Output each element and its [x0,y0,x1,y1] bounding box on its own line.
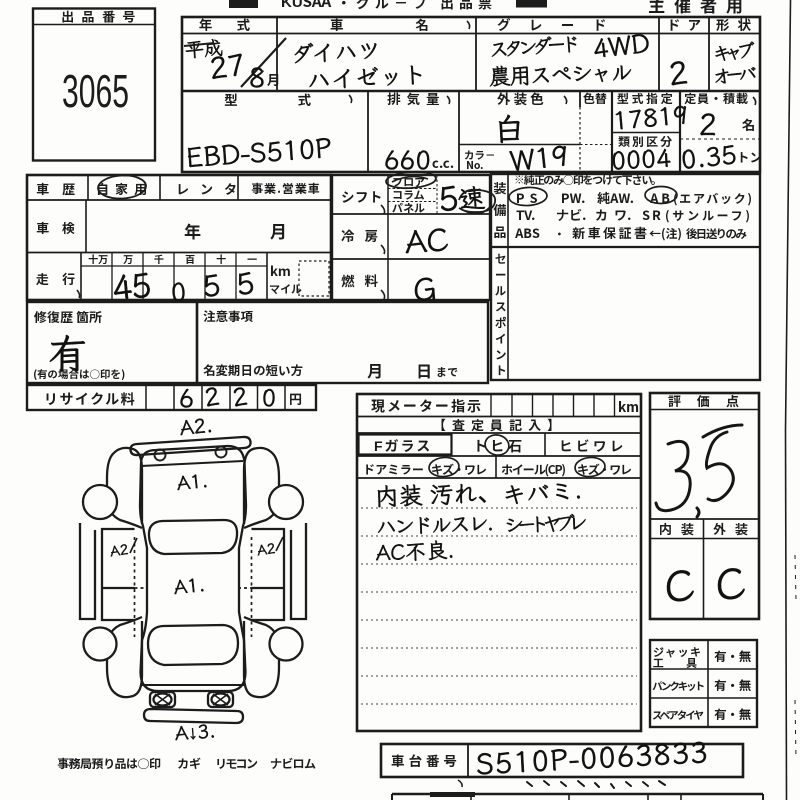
svg-text:事業.営業車: 事業.営業車 [251,180,321,197]
svg-text:パンクキット: パンクキット [652,679,705,694]
svg-text:農用スペシャル: 農用スペシャル [488,54,633,91]
svg-text:内装: 内装 [659,519,703,538]
svg-text:(有の場合は○印を): (有の場合は○印を) [33,367,125,382]
svg-text:17819: 17819 [611,95,689,137]
svg-text:カ: カ [595,205,608,224]
svg-text:A2: A2 [255,538,277,560]
svg-text:スペアタイヤ: スペアタイヤ [652,708,704,723]
svg-text:装: 装 [494,178,507,197]
svg-text:3065: 3065 [62,65,129,117]
svg-text:セ: セ [495,251,507,267]
svg-text:A2.: A2. [177,409,214,441]
svg-text:評価点: 評価点 [668,391,755,410]
svg-text:有・無: 有・無 [714,646,752,665]
svg-text:色替: 色替 [582,90,608,107]
svg-text:名: 名 [742,114,756,134]
svg-text:キバミ.: キバミ. [500,470,583,511]
svg-text:月: 月 [270,218,287,243]
svg-text:石: 石 [508,436,522,456]
svg-text:名変期日の短い方: 名変期日の短い方 [203,360,303,379]
svg-text:レンタ: レンタ [176,179,248,198]
svg-text:有・無: 有・無 [714,704,752,723]
svg-text:オ－バ: オ－バ [711,58,759,90]
svg-text:c.c.: c.c. [432,153,454,172]
svg-text:車名: 車名 [330,14,501,34]
svg-text:円: 円 [289,389,302,408]
svg-text:ト: ト [495,363,507,379]
svg-text:百: 百 [185,251,195,266]
svg-text:ー: ー [495,267,507,283]
svg-text:ル: ル [495,283,507,299]
svg-text:カギ: カギ [177,755,201,772]
svg-text:KUSAA: KUSAA [281,0,332,12]
svg-text:No.: No. [466,158,484,173]
svg-text:月: 月 [266,69,281,89]
svg-text:ドア: ドア [667,14,708,34]
svg-text:0.35: 0.35 [679,134,738,177]
svg-text:日: 日 [416,358,432,382]
svg-text:注意事項: 注意事項 [203,306,254,325]
svg-text:ナビ.: ナビ. [556,205,586,224]
svg-text:6: 6 [179,379,194,415]
svg-text:排気量: 排気量 [387,88,446,108]
svg-text:【査定員記入】: 【査定員記入】 [433,415,566,434]
svg-text:冷房: 冷房 [341,225,388,245]
svg-text:年: 年 [184,218,201,243]
svg-text:外装: 外装 [713,519,757,538]
svg-text:G: G [411,263,437,310]
svg-text:工具: 工具 [653,655,719,671]
svg-text:車検: 車検 [36,218,88,237]
svg-text:※純正のみ○印をつけて下さい。: ※純正のみ○印をつけて下さい。 [514,172,662,188]
svg-text:km: km [618,396,639,416]
svg-text:トン: トン [737,147,762,166]
svg-text:リサイクル料: リサイクル料 [44,389,136,409]
svg-text:AC: AC [402,214,449,262]
svg-text:後日送りのみ: 後日送りのみ [686,226,748,242]
svg-text:A1.: A1. [174,466,209,496]
svg-text:イ: イ [495,331,507,347]
svg-text:AC不良.: AC不良. [374,534,455,567]
svg-text:5: 5 [200,260,222,305]
svg-text:(エアバック): (エアバック) [673,190,752,207]
svg-text:シートヤブレ: シートヤブレ [503,506,588,538]
svg-text:ス: ス [495,299,507,315]
svg-text:出品番号: 出品番号 [61,7,143,26]
svg-text:・: ・ [554,226,565,242]
svg-text:型式: 型式 [224,89,371,109]
svg-text:月: 月 [367,358,383,382]
svg-text:(サンルーフ): (サンルーフ) [665,207,750,224]
svg-text:Fガラス: Fガラス [374,436,432,456]
svg-text:・グル－プ 出品票: ・グル－プ 出品票 [337,0,497,13]
svg-text:有・無: 有・無 [714,675,752,694]
svg-text:パネル: パネル [392,200,425,216]
svg-text:備: 備 [494,200,507,219]
svg-text:ワ.: ワ. [614,205,631,224]
svg-text:車歴: 車歴 [36,179,88,198]
svg-text:形状: 形状 [716,14,759,34]
svg-text:ヒビワレ: ヒビワレ [559,435,627,455]
svg-text:車台番号: 車台番号 [391,750,461,770]
svg-text:リモコン: リモコン [215,755,258,772]
svg-text:燃料: 燃料 [341,270,388,290]
svg-text:品: 品 [494,222,507,241]
svg-text:マイル: マイル [269,281,302,297]
svg-text:27: 27 [206,39,248,88]
svg-text:TV.: TV. [516,205,535,224]
svg-text:0: 0 [169,272,188,310]
svg-text:←(注): ←(注) [649,225,682,242]
svg-text:内装 汚れ、: 内装 汚れ、 [374,473,502,512]
svg-text:現メーター指示: 現メーター指示 [371,396,481,416]
svg-text:年式: 年式 [199,14,274,34]
svg-text:まで: まで [436,364,458,380]
svg-text:事務局預り品は○印: 事務局預り品は○印 [57,755,161,772]
svg-text:A↓3.: A↓3. [173,716,216,746]
svg-text:シフト: シフト [341,186,383,206]
svg-text:A2: A2 [108,539,130,561]
svg-text:新車保証書: 新車保証書 [572,223,650,242]
svg-text:km: km [270,261,290,280]
svg-text:ABS: ABS [515,223,540,242]
svg-text:ン: ン [495,347,507,363]
svg-text:5: 5 [436,170,461,221]
svg-text:0: 0 [262,378,276,413]
svg-text:SR: SR [642,205,663,224]
svg-text:十万: 十万 [88,251,108,266]
svg-text:ナビロム: ナビロム [270,755,316,772]
svg-text:千: 千 [154,251,164,266]
svg-text:ポ: ポ [495,315,507,331]
svg-text:A1.: A1. [171,570,206,600]
